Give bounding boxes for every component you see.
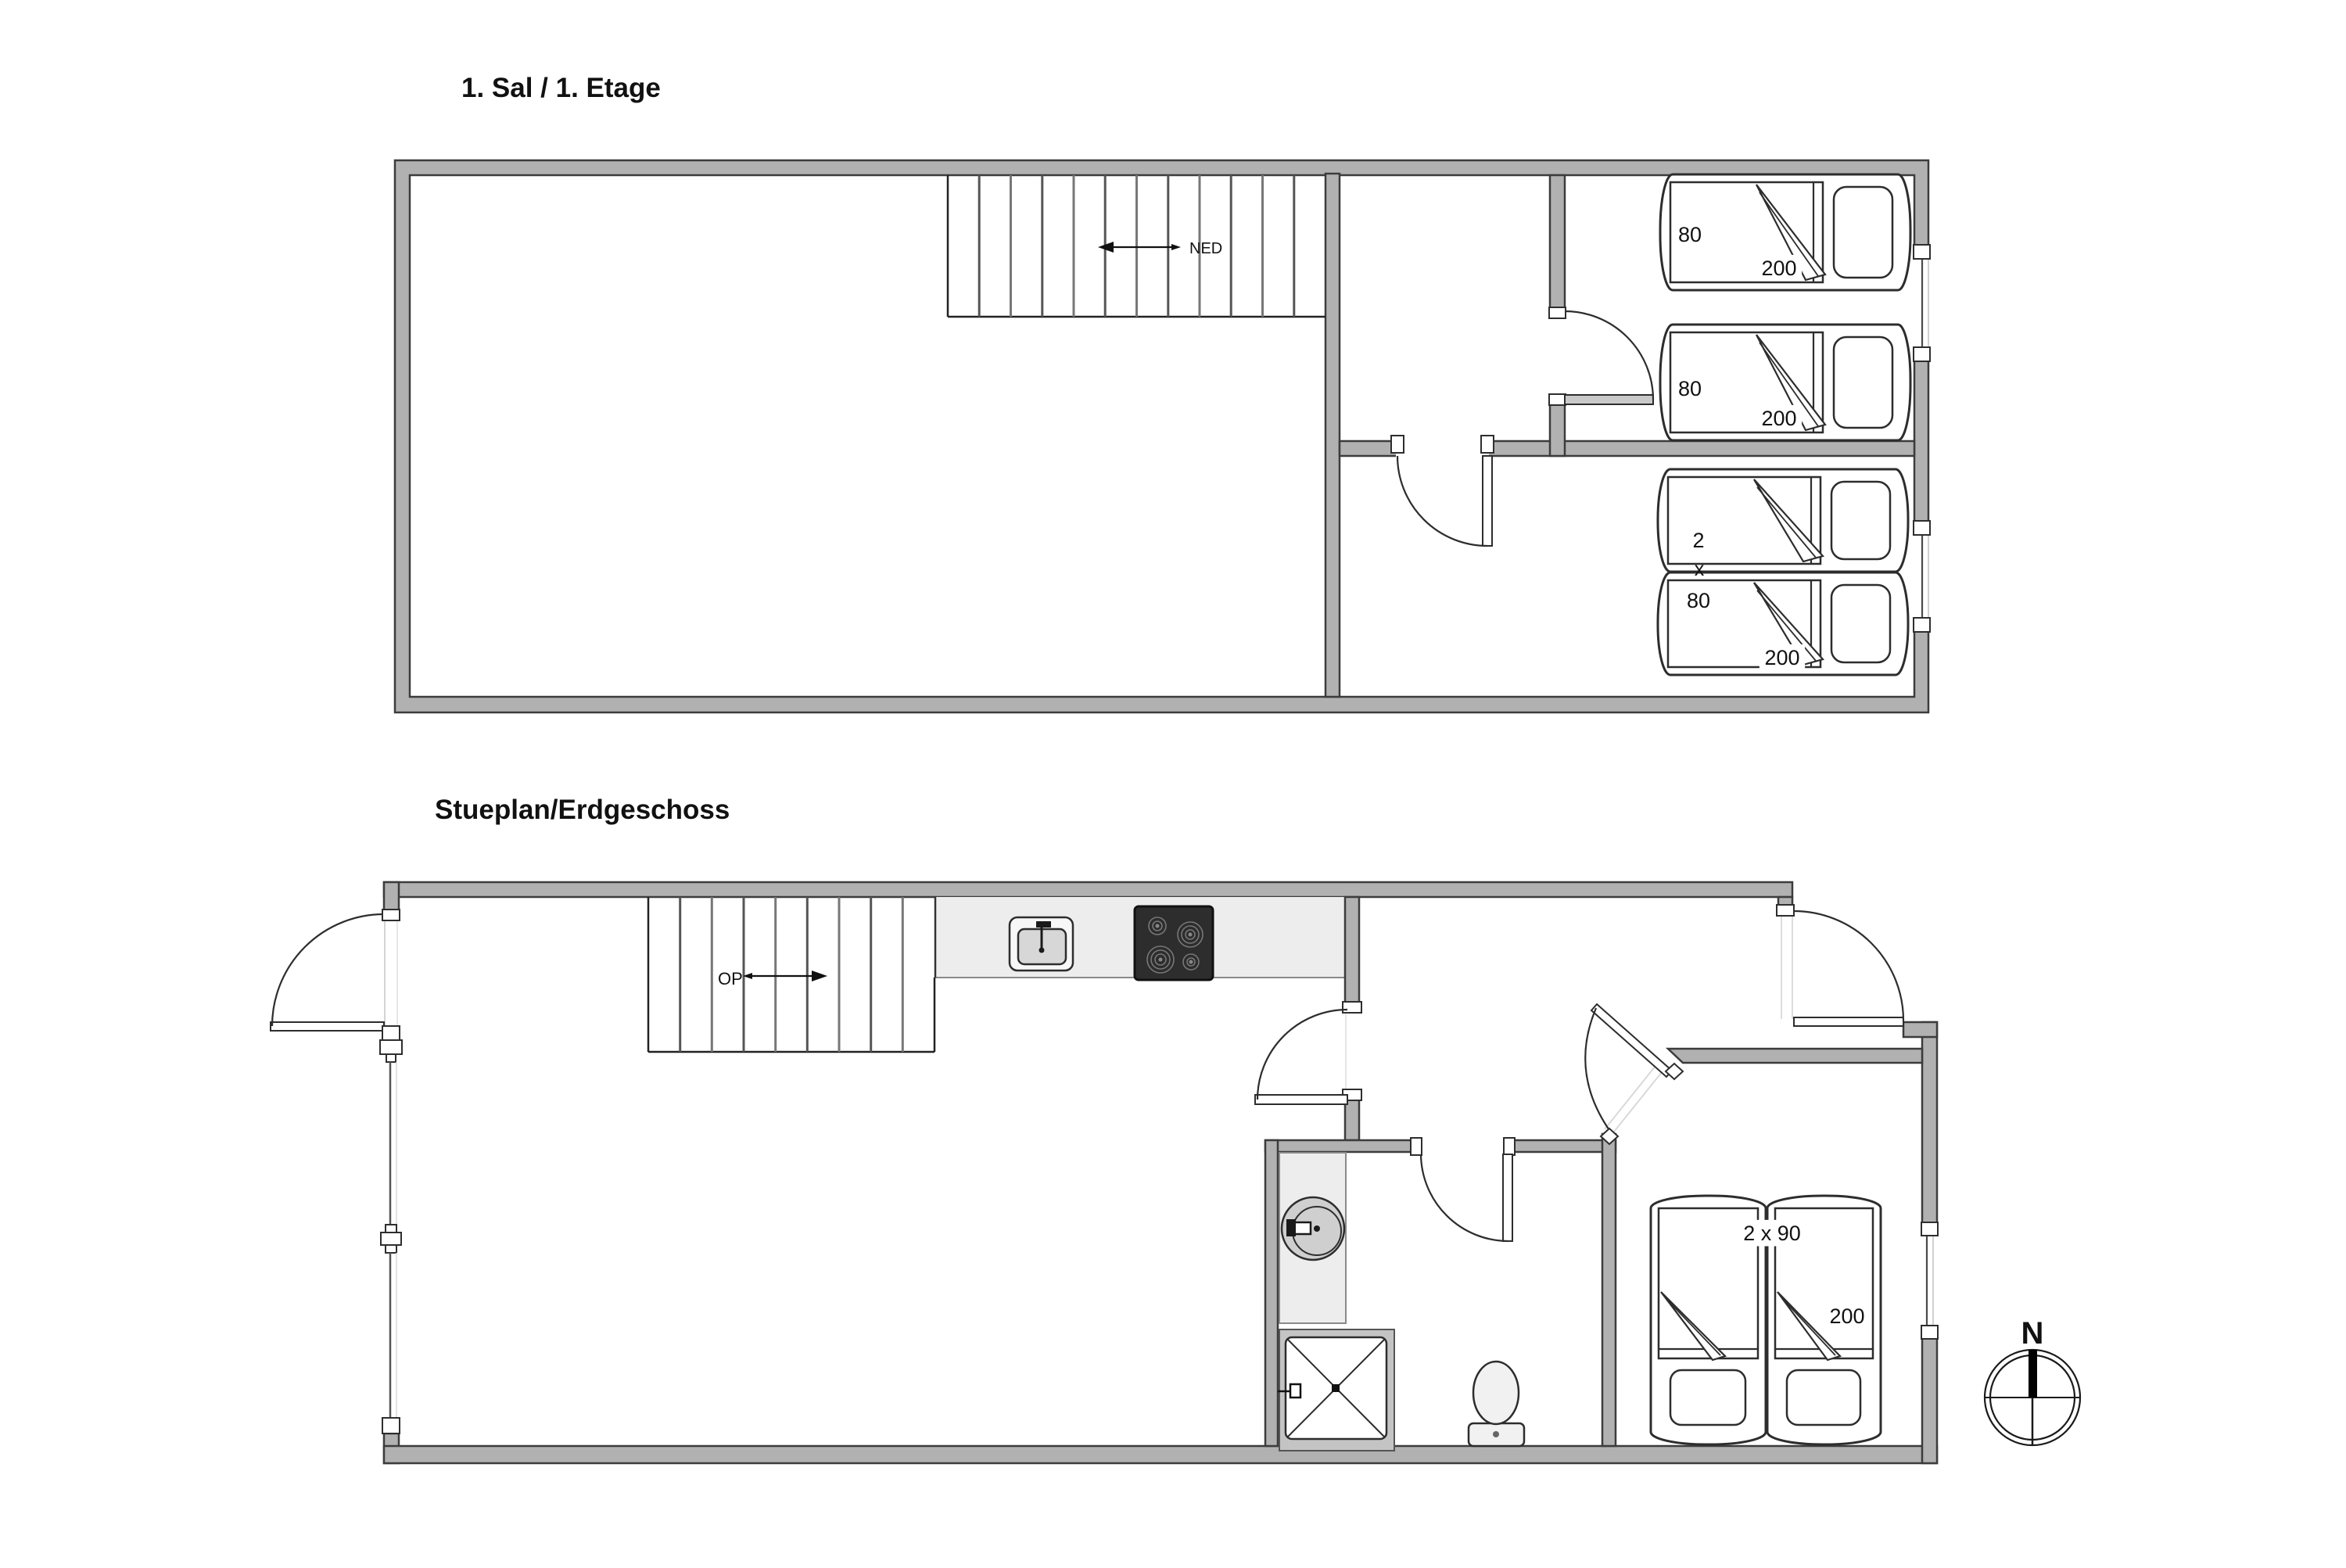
svg-text:Stueplan/Erdgeschoss: Stueplan/Erdgeschoss xyxy=(435,795,730,825)
svg-text:OP: OP xyxy=(718,969,743,989)
svg-text:N: N xyxy=(2021,1316,2044,1351)
svg-text:200: 200 xyxy=(1761,257,1796,280)
svg-text:1. Sal / 1. Etage: 1. Sal / 1. Etage xyxy=(461,73,661,103)
svg-text:80: 80 xyxy=(1687,589,1710,612)
svg-text:80: 80 xyxy=(1678,377,1702,400)
svg-text:200: 200 xyxy=(1761,407,1796,430)
svg-text:80: 80 xyxy=(1678,223,1702,246)
svg-text:2 x 90: 2 x 90 xyxy=(1743,1222,1801,1245)
svg-text:200: 200 xyxy=(1829,1304,1864,1328)
svg-text:200: 200 xyxy=(1764,646,1799,669)
svg-text:NED: NED xyxy=(1189,240,1222,257)
svg-text:2: 2 xyxy=(1692,529,1704,552)
svg-text:x: x xyxy=(1695,558,1705,580)
